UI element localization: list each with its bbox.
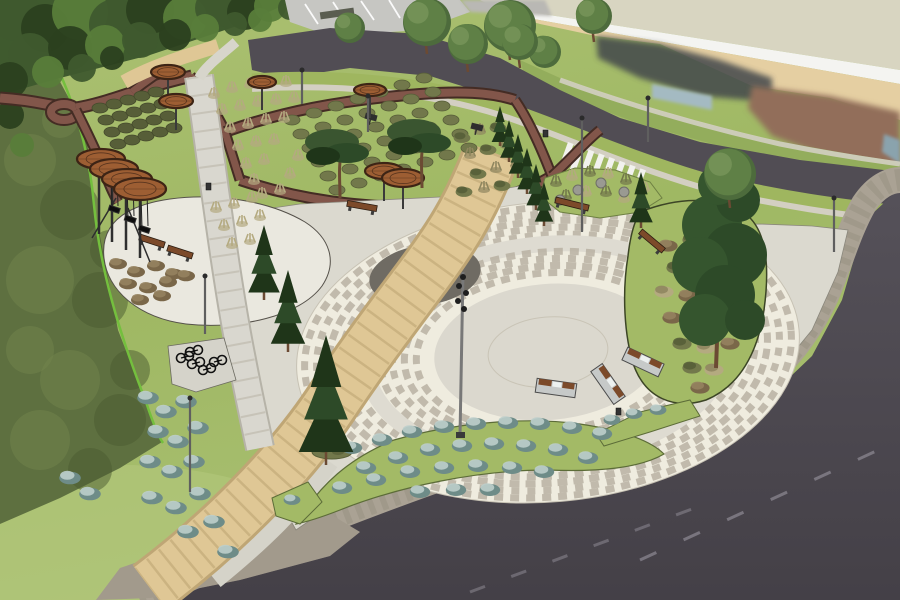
grass-tuft-base	[246, 197, 258, 203]
trash-bin	[206, 183, 211, 190]
row-shrub	[98, 115, 114, 125]
forest-tree	[100, 46, 124, 70]
lamp-head	[188, 396, 193, 401]
shrub-highlight	[481, 483, 495, 492]
shrub-highlight	[517, 439, 531, 448]
shrub-highlight	[166, 501, 180, 510]
lamp-head	[580, 116, 585, 121]
row-shrub	[417, 157, 433, 167]
canopy-blob	[679, 294, 731, 346]
shrub-highlight	[467, 417, 481, 426]
shrub-highlight	[447, 483, 461, 492]
mast-lamp	[460, 274, 466, 280]
grass-tuft-base	[600, 191, 612, 197]
shrub-highlight	[456, 186, 467, 193]
mast-lamp	[463, 290, 469, 296]
shrub-highlight	[138, 391, 152, 400]
grass-tuft-base	[618, 197, 630, 203]
row-shrub	[166, 123, 182, 133]
shrub-highlight	[531, 417, 545, 426]
shrub-highlight	[480, 144, 491, 151]
grass-tuft-base	[224, 127, 236, 133]
shrub-highlight	[204, 515, 218, 524]
shrub-highlight	[166, 268, 178, 276]
grass-tuft-base	[566, 175, 578, 181]
shrub-highlight	[454, 132, 465, 139]
mast-lamp	[456, 283, 462, 289]
row-shrub	[320, 171, 336, 181]
shrub-highlight	[485, 437, 499, 446]
grass-tuft-base	[260, 119, 272, 125]
shrub-highlight	[80, 487, 94, 496]
grass-tuft-base	[236, 221, 248, 227]
park-render-screenshot	[0, 0, 900, 600]
row-shrub	[140, 103, 156, 113]
shrub-highlight	[683, 362, 696, 370]
shrub-highlight	[673, 338, 686, 346]
row-shrub	[425, 87, 441, 97]
row-shrub	[403, 94, 419, 104]
shrub-highlight	[178, 525, 192, 534]
row-shrub	[134, 91, 150, 101]
shrub-highlight	[691, 382, 704, 390]
shrub-highlight	[593, 427, 607, 436]
shrub-highlight	[453, 439, 467, 448]
meadow-blotch	[68, 448, 112, 492]
shrub-highlight	[494, 180, 505, 187]
boulder	[619, 187, 629, 197]
forest-tree	[159, 19, 191, 51]
grass-tuft-base	[210, 207, 222, 213]
row-shrub	[306, 108, 322, 118]
meadow-blotch	[10, 410, 70, 470]
boulder	[596, 178, 606, 188]
shrub-highlight	[333, 481, 347, 490]
park-render-canvas	[0, 0, 900, 600]
shrub-highlight	[162, 465, 176, 474]
shrub-highlight	[655, 286, 668, 294]
shrub-highlight	[389, 451, 403, 460]
shrub-highlight	[604, 414, 615, 421]
meadow-blotch	[6, 326, 54, 374]
shrub-highlight	[60, 471, 74, 480]
grass-tuft-base	[278, 117, 290, 123]
grass-tuft-base	[602, 173, 614, 179]
row-shrub	[443, 115, 459, 125]
shrub-highlight	[579, 451, 593, 460]
row-shrub	[110, 139, 126, 149]
shrub-highlight	[563, 421, 577, 430]
meadow-blotch	[6, 246, 74, 314]
row-shrub	[394, 80, 410, 90]
shrub-highlight	[357, 461, 371, 470]
grass-tuft-base	[226, 243, 238, 249]
row-shrub	[434, 101, 450, 111]
shrub-highlight	[373, 433, 387, 442]
shrub-highlight	[470, 168, 481, 175]
grass-tuft-base	[208, 93, 220, 99]
grass-tuft-base	[478, 187, 490, 193]
forest-tree	[223, 12, 247, 36]
lamp-head	[203, 274, 208, 279]
forest-tree	[32, 56, 64, 88]
shrub-highlight	[218, 545, 232, 554]
row-shrub	[126, 107, 142, 117]
row-shrub	[152, 127, 168, 137]
row-shrub	[118, 123, 134, 133]
shrub-highlight	[168, 435, 182, 444]
grass-tuft-base	[248, 179, 260, 185]
row-shrub	[124, 135, 140, 145]
shrub-highlight	[403, 425, 417, 434]
shrub-highlight	[721, 338, 734, 346]
row-shrub	[412, 108, 428, 118]
row-shrub	[342, 164, 358, 174]
row-shrub	[92, 103, 108, 113]
shrub-highlight	[401, 465, 415, 474]
row-shrub	[416, 73, 432, 83]
row-shrub	[146, 115, 162, 125]
canopy-blob	[725, 300, 765, 340]
mast-lamp	[461, 306, 467, 312]
shrub-highlight	[184, 455, 198, 464]
grass-tuft-base	[584, 171, 596, 177]
row-shrub	[106, 99, 122, 109]
row-shrub	[132, 119, 148, 129]
shrub-highlight	[469, 459, 483, 468]
row-shrub	[160, 111, 176, 121]
grass-tuft-base	[284, 173, 296, 179]
grass-tuft-base	[226, 87, 238, 93]
forest-tree	[10, 133, 34, 157]
lamp-head	[366, 94, 371, 99]
shrub-highlight	[650, 404, 661, 411]
grass-tuft-base	[490, 167, 502, 173]
grass-tuft-base	[270, 99, 282, 105]
meadow-blotch	[40, 180, 100, 240]
row-shrub	[381, 101, 397, 111]
grass-tuft-base	[228, 203, 240, 209]
shrub-highlight	[178, 270, 190, 278]
shrub-highlight	[128, 266, 140, 274]
grass-tuft-base	[216, 109, 228, 115]
shrub-highlight	[142, 491, 156, 500]
grass-tuft-base	[234, 105, 246, 111]
shrub-highlight	[435, 461, 449, 470]
lamp-head	[300, 68, 305, 73]
grass-tuft-base	[244, 239, 256, 245]
row-shrub	[461, 143, 477, 153]
mast-lamp	[455, 298, 461, 304]
grass-tuft-base	[550, 181, 562, 187]
shrub-highlight	[132, 294, 144, 302]
grass-tuft-base	[280, 81, 292, 87]
grass-tuft-base	[288, 97, 300, 103]
grass-tuft-base	[232, 145, 244, 151]
shrub-highlight	[160, 276, 172, 284]
row-shrub	[112, 111, 128, 121]
shrub-highlight	[663, 312, 676, 320]
shrub-highlight	[148, 425, 162, 434]
row-shrub	[148, 87, 164, 97]
shrub-highlight	[503, 461, 517, 470]
grass-tuft-base	[250, 141, 262, 147]
grass-tuft-base	[218, 225, 230, 231]
lamp-head	[832, 196, 837, 201]
row-shrub	[328, 101, 344, 111]
row-shrub	[351, 178, 367, 188]
trash-bin	[616, 408, 621, 415]
row-shrub	[120, 95, 136, 105]
trash-bin	[543, 130, 548, 137]
shrub-highlight	[120, 278, 132, 286]
shrub-highlight	[535, 465, 549, 474]
shrub-highlight	[284, 494, 295, 501]
grass-tuft-base	[268, 139, 280, 145]
row-shrub	[104, 127, 120, 137]
row-shrub	[439, 150, 455, 160]
forest-tree	[191, 14, 219, 42]
forest-tree	[122, 22, 158, 58]
shrub-highlight	[156, 405, 170, 414]
shrub-highlight	[435, 420, 449, 429]
grass-tuft-base	[256, 193, 268, 199]
shrub-highlight	[110, 258, 122, 266]
shrub-highlight	[140, 282, 152, 290]
shrub-highlight	[549, 443, 563, 452]
meadow-blotch	[94, 394, 146, 446]
shrub-highlight	[626, 408, 637, 415]
mast-base	[456, 432, 465, 438]
lamp-head	[646, 96, 651, 101]
shrub-highlight	[154, 290, 166, 298]
shrub-highlight	[421, 443, 435, 452]
grass-tuft-base	[620, 179, 632, 185]
shrub-highlight	[367, 473, 381, 482]
grass-tuft-base	[464, 153, 476, 159]
grass-tuft-base	[254, 215, 266, 221]
grass-tuft-base	[240, 163, 252, 169]
grass-tuft-base	[274, 189, 286, 195]
forest-tree	[248, 8, 272, 32]
grass-tuft-base	[292, 155, 304, 161]
row-shrub	[337, 115, 353, 125]
shrub-highlight	[140, 455, 154, 464]
shrub-highlight	[190, 487, 204, 496]
grass-tuft-base	[258, 159, 270, 165]
row-shrub	[329, 185, 345, 195]
grass-tuft-base	[242, 123, 254, 129]
row-shrub	[293, 129, 309, 139]
shrub-highlight	[499, 416, 513, 425]
shrub-highlight	[411, 485, 425, 494]
row-shrub	[138, 131, 154, 141]
forest-tree	[68, 54, 96, 82]
row-shrub	[368, 122, 384, 132]
